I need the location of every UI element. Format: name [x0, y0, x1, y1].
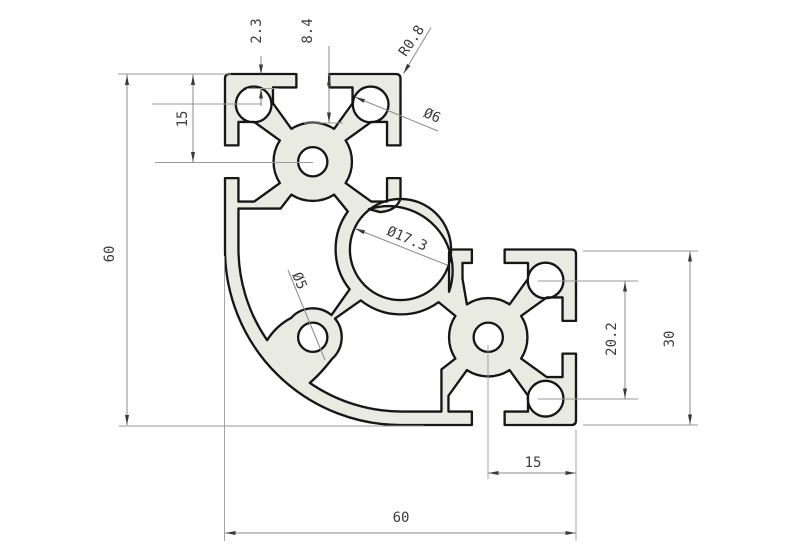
dim-overall-width: 60 — [393, 510, 410, 526]
dimension-lines — [127, 28, 690, 534]
dim-slot-depth: 8.4 — [300, 18, 316, 43]
dim-hole-spacing-right: 20.2 — [604, 322, 620, 356]
dim-hole-edge-offset-bottom: 15 — [525, 455, 542, 471]
dim-center-bore-dia: Ø17.3 — [384, 223, 429, 254]
dim-corner-hole-dia: Ø6 — [421, 105, 443, 126]
extrusion-profile-outline — [225, 74, 576, 425]
dim-diagonal-hole-dia: Ø5 — [288, 270, 309, 292]
dim-overall-height: 60 — [102, 246, 118, 263]
extrusion-profile — [225, 74, 576, 425]
drawing-canvas: 2.3 8.4 R0.8 Ø6 15 60 Ø17.3 Ø5 20.2 30 1… — [0, 0, 804, 557]
dim-slot-center-offset-left: 15 — [175, 111, 191, 128]
dim-block-size-right: 30 — [662, 331, 678, 348]
dim-lip-thickness: 2.3 — [249, 18, 265, 43]
profile-drawing: 2.3 8.4 R0.8 Ø6 15 60 Ø17.3 Ø5 20.2 30 1… — [0, 0, 804, 557]
